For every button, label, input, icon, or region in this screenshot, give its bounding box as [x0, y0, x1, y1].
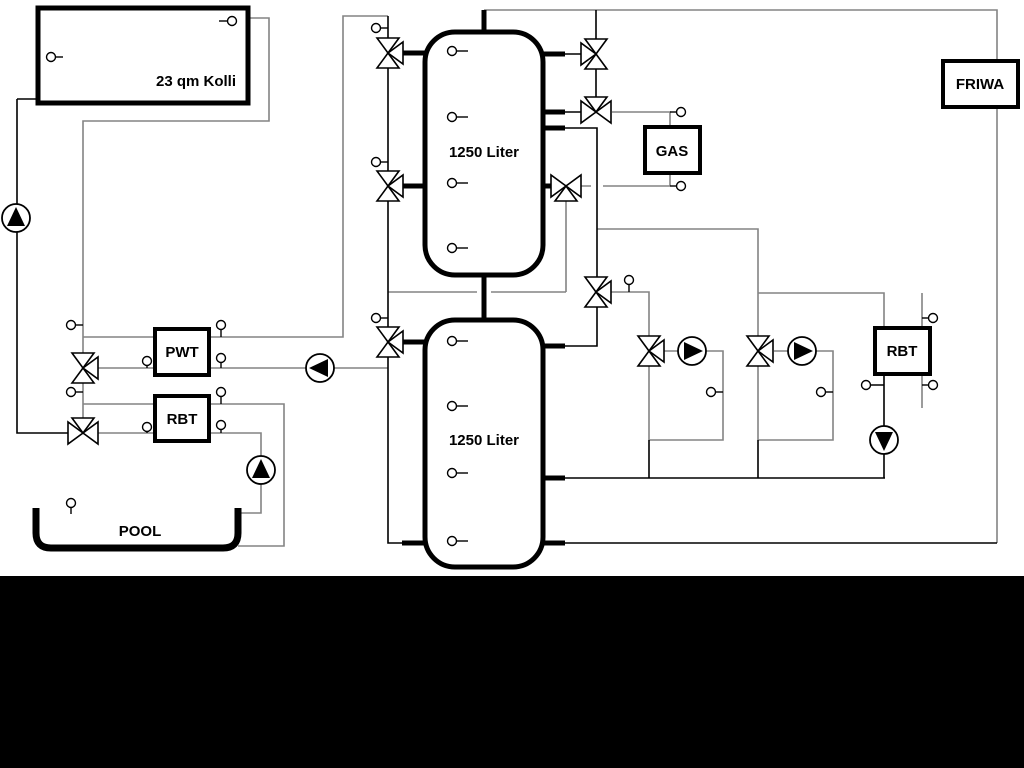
- gas-label: GAS: [656, 143, 689, 160]
- pool-label: POOL: [119, 523, 162, 540]
- pwt-label: PWT: [165, 344, 198, 361]
- pump-icon: [870, 426, 898, 454]
- pump-icon: [2, 204, 30, 232]
- pump-icon: [788, 337, 816, 365]
- bottom-black-band: [0, 576, 1024, 768]
- pump-icon: [247, 456, 275, 484]
- friwa-label: FRIWA: [956, 76, 1004, 93]
- rbt-left-label: RBT: [167, 411, 198, 428]
- schematic-page: 23 qm Kolli 1250 Liter 1250 Liter GAS FR…: [0, 0, 1024, 768]
- tank-bottom-label: 1250 Liter: [449, 432, 519, 449]
- pump-icon: [306, 354, 334, 382]
- rbt-right-label: RBT: [887, 343, 918, 360]
- tank-top-label: 1250 Liter: [449, 144, 519, 161]
- pump-icon: [678, 337, 706, 365]
- schematic-canvas: 23 qm Kolli 1250 Liter 1250 Liter GAS FR…: [0, 0, 1024, 768]
- collector-label: 23 qm Kolli: [156, 73, 236, 90]
